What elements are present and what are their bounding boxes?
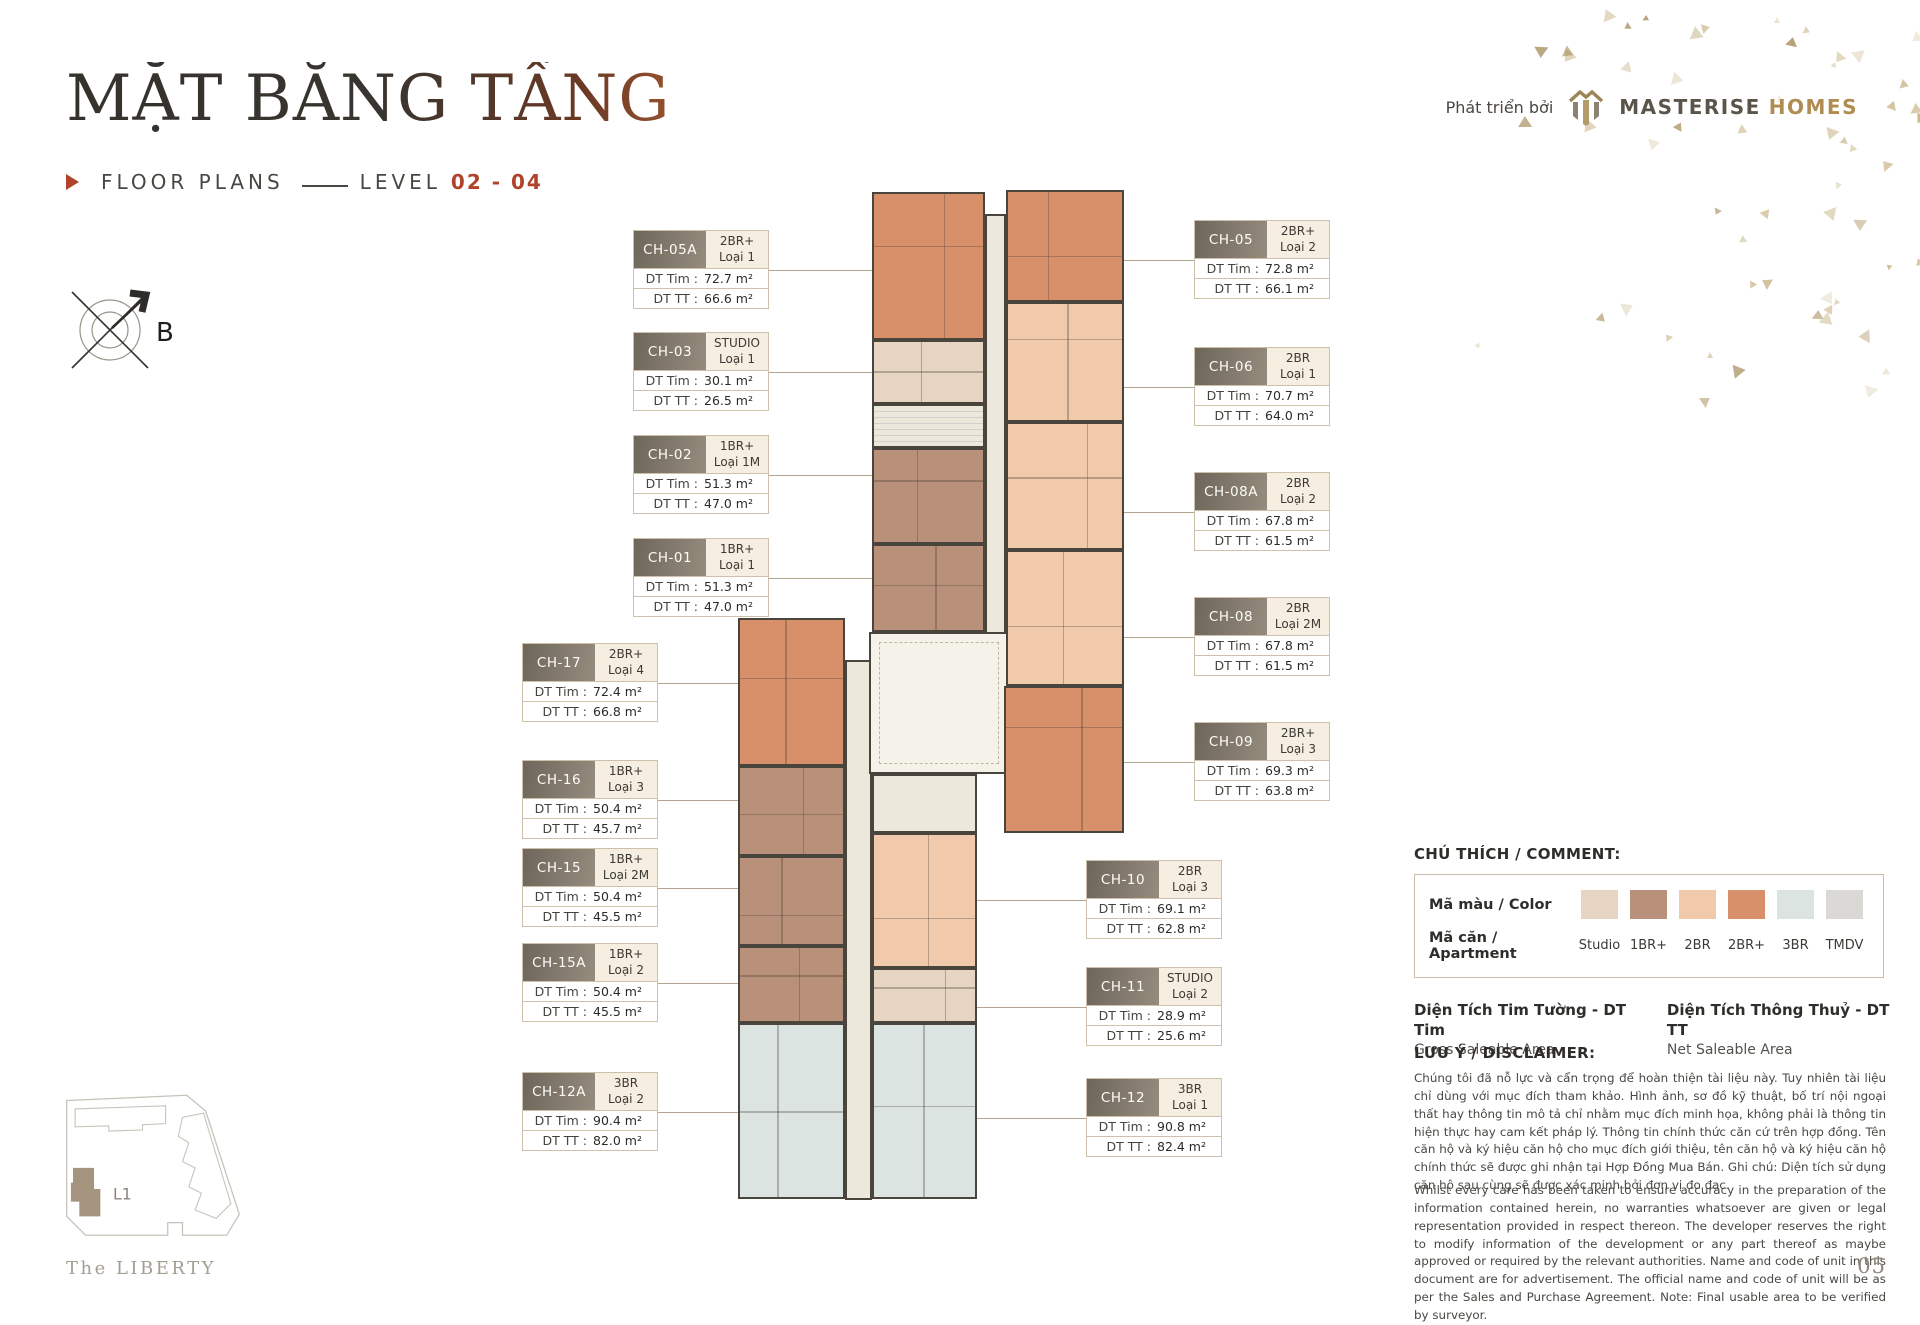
level-value: 02 - 04	[451, 170, 543, 194]
brand-word-masterise: MASTERISE	[1619, 95, 1761, 119]
room-divider	[1087, 424, 1089, 548]
room-divider	[874, 585, 983, 587]
unit-dt-tim-row: DT Tim :67.8 m²	[1195, 635, 1329, 655]
legend-swatch-2BR+	[1728, 890, 1765, 919]
confetti-triangle-icon	[1838, 136, 1847, 146]
confetti-triangle-icon	[1737, 235, 1747, 246]
unit-label-CH-08A: CH-08A 2BRLoại 2 DT Tim :67.8 m² DT TT :…	[1194, 472, 1330, 551]
legend-cell	[1624, 890, 1673, 919]
unit-label-header: CH-08A 2BRLoại 2	[1195, 473, 1329, 510]
confetti-triangle-icon	[1758, 208, 1768, 219]
building-label: L1	[113, 1184, 132, 1203]
unit-label-CH-12A: CH-12A 3BRLoại 2 DT Tim :90.4 m² DT TT :…	[522, 1072, 658, 1151]
connector-line	[769, 578, 872, 579]
unit-type: 2BR+Loại 4	[595, 644, 657, 681]
legend-swatch-Studio	[1581, 890, 1618, 919]
unit-type: STUDIOLoại 2	[1159, 968, 1221, 1005]
unit-type: STUDIOLoại 1	[706, 333, 768, 370]
room-divider	[799, 948, 801, 1021]
confetti-triangle-icon	[1699, 393, 1713, 408]
compass-icon: B	[64, 286, 194, 378]
unit-code: CH-17	[523, 644, 595, 681]
unit-dt-tt-row: DT TT :45.7 m²	[523, 818, 657, 838]
confetti-triangle-icon	[1475, 343, 1482, 350]
room-divider	[803, 768, 805, 854]
confetti-triangle-icon	[1899, 79, 1910, 91]
legend-color-row-label: Mã màu / Color	[1429, 897, 1575, 913]
legend-label-3BR: 3BR	[1771, 938, 1820, 953]
unit-label-CH-01: CH-01 1BR+Loại 1 DT Tim :51.3 m² DT TT :…	[633, 538, 769, 617]
confetti-triangle-icon	[1829, 62, 1835, 69]
confetti-triangle-icon	[1785, 36, 1799, 47]
confetti-triangle-icon	[1701, 22, 1711, 34]
unit-code: CH-15A	[523, 944, 595, 981]
unit-label-header: CH-05A 2BR+Loại 1	[634, 231, 768, 268]
unit-code: CH-09	[1195, 723, 1267, 760]
room-divider	[945, 970, 947, 1021]
unit-dt-tt-row: DT TT :66.8 m²	[523, 701, 657, 721]
unit-label-CH-17: CH-17 2BR+Loại 4 DT Tim :72.4 m² DT TT :…	[522, 643, 658, 722]
room-divider	[923, 1025, 925, 1197]
unit-dt-tim-row: DT Tim :70.7 m²	[1195, 385, 1329, 405]
disclaimer-heading: LƯU Ý / DISCLAIMER:	[1414, 1044, 1595, 1062]
unit-type: 2BRLoại 1	[1267, 348, 1329, 385]
room-divider	[740, 915, 843, 917]
room-divider	[781, 858, 783, 944]
area-term: Diện Tích Tim Tường - DT Tim	[1414, 1000, 1641, 1041]
room-divider	[1008, 339, 1122, 341]
unit-dt-tt-row: DT TT :47.0 m²	[634, 493, 768, 513]
plan-unit-CH-09	[1004, 686, 1124, 833]
plan-unit-CH-06	[1006, 302, 1124, 422]
room-divider	[1063, 552, 1065, 684]
confetti-triangle-icon	[1835, 180, 1842, 189]
confetti-triangle-icon	[1909, 102, 1920, 113]
plan-unit-CH-08	[1006, 550, 1124, 686]
unit-label-header: CH-10 2BRLoại 3	[1087, 861, 1221, 898]
confetti-triangle-icon	[1886, 101, 1899, 114]
area-term: Diện Tích Thông Thuỷ - DT TT	[1667, 1000, 1894, 1041]
legend-apartment-row-label: Mã căn / Apartment	[1429, 930, 1575, 962]
unit-code: CH-06	[1195, 348, 1267, 385]
unit-label-CH-05A: CH-05A 2BR+Loại 1 DT Tim :72.7 m² DT TT …	[633, 230, 769, 309]
unit-type: 1BR+Loại 1M	[706, 436, 768, 473]
compass: B	[64, 286, 194, 382]
unit-label-CH-15A: CH-15A 1BR+Loại 2 DT Tim :50.4 m² DT TT …	[522, 943, 658, 1022]
connector-line	[769, 372, 872, 373]
unit-dt-tim-row: DT Tim :72.4 m²	[523, 681, 657, 701]
connector-line	[658, 683, 738, 684]
unit-label-header: CH-05 2BR+Loại 2	[1195, 221, 1329, 258]
plan-unit-CH-12A	[738, 1023, 845, 1199]
plan-unit-CH-10	[872, 833, 977, 968]
confetti-triangle-icon	[1759, 275, 1773, 290]
legend-heading: CHÚ THÍCH / COMMENT:	[1414, 845, 1621, 863]
room-divider	[1008, 477, 1122, 479]
confetti-triangle-icon	[1599, 7, 1616, 23]
connector-line	[1124, 260, 1194, 261]
unit-code: CH-05A	[634, 231, 706, 268]
legend-color-row: Mã màu / Color	[1429, 890, 1869, 919]
confetti-triangle-icon	[1853, 220, 1867, 231]
unit-type: 2BR+Loại 2	[1267, 221, 1329, 258]
confetti-triangle-icon	[1747, 278, 1757, 288]
confetti-triangle-icon	[1819, 312, 1837, 330]
subtitle-rule	[302, 185, 348, 187]
legend-swatch-3BR	[1777, 890, 1814, 919]
unit-type: 1BR+Loại 3	[595, 761, 657, 798]
confetti-triangle-icon	[1915, 257, 1920, 266]
developer-credit: Phát triển bởi MASTERISE HOMES	[1446, 88, 1858, 126]
unit-code: CH-08	[1195, 598, 1267, 635]
unit-label-CH-06: CH-06 2BRLoại 1 DT Tim :70.7 m² DT TT :6…	[1194, 347, 1330, 426]
unit-code: CH-03	[634, 333, 706, 370]
unit-type: 1BR+Loại 2M	[595, 849, 657, 886]
page-title: MẶT BẰNG TẦNG	[66, 62, 671, 136]
unit-dt-tt-row: DT TT :61.5 m²	[1195, 530, 1329, 550]
unit-label-CH-12: CH-12 3BRLoại 1 DT Tim :90.8 m² DT TT :8…	[1086, 1078, 1222, 1157]
confetti-triangle-icon	[1820, 291, 1838, 308]
unit-label-header: CH-06 2BRLoại 1	[1195, 348, 1329, 385]
confetti-triangle-icon	[1712, 207, 1722, 216]
confetti-triangle-icon	[1707, 352, 1713, 358]
unit-type: 2BRLoại 3	[1159, 861, 1221, 898]
unit-dt-tt-row: DT TT :26.5 m²	[634, 390, 768, 410]
confetti-triangle-icon	[1847, 144, 1858, 155]
connector-line	[1124, 637, 1194, 638]
room-divider	[874, 987, 975, 989]
legend-cell	[1771, 890, 1820, 919]
plan-unit-CH-02	[872, 448, 985, 544]
room-divider	[1008, 626, 1122, 628]
unit-label-CH-15: CH-15 1BR+Loại 2M DT Tim :50.4 m² DT TT …	[522, 848, 658, 927]
compass-north-label: B	[156, 318, 174, 348]
unit-dt-tim-row: DT Tim :90.4 m²	[523, 1110, 657, 1130]
confetti-triangle-icon	[1811, 310, 1824, 320]
unit-label-header: CH-02 1BR+Loại 1M	[634, 436, 768, 473]
room-divider	[921, 342, 923, 402]
unit-dt-tim-row: DT Tim :72.8 m²	[1195, 258, 1329, 278]
legend-apartment-row: Mã căn / Apartment Studio1BR+2BR2BR+3BRT…	[1429, 930, 1869, 962]
legend-swatch-1BR+	[1630, 890, 1667, 919]
confetti-triangle-icon	[1596, 312, 1609, 325]
room-divider	[740, 678, 843, 680]
room-divider	[944, 194, 946, 338]
unit-dt-tim-row: DT Tim :90.8 m²	[1087, 1116, 1221, 1136]
legend-label-Studio: Studio	[1575, 938, 1624, 953]
confetti-triangle-icon	[1824, 302, 1837, 315]
connector-line	[1124, 512, 1194, 513]
room-divider	[917, 450, 919, 542]
connector-line	[769, 475, 872, 476]
unit-code: CH-10	[1087, 861, 1159, 898]
area-def: Net Saleable Area	[1667, 1041, 1894, 1060]
plan-core	[845, 660, 872, 1200]
unit-type: 1BR+Loại 1	[706, 539, 768, 576]
room-divider	[740, 1111, 843, 1113]
unit-type: 1BR+Loại 2	[595, 944, 657, 981]
legend-swatch-2BR	[1679, 890, 1716, 919]
unit-dt-tt-row: DT TT :45.5 m²	[523, 1001, 657, 1021]
unit-dt-tim-row: DT Tim :50.4 m²	[523, 798, 657, 818]
confetti-triangle-icon	[1663, 332, 1673, 342]
plan-lobby	[869, 632, 1009, 774]
legend-label-TMDV: TMDV	[1820, 938, 1869, 953]
room-divider	[935, 546, 937, 630]
confetti-triangle-icon	[1858, 329, 1870, 344]
brand-word-homes: HOMES	[1769, 95, 1858, 119]
plan-unit-CH-16	[738, 766, 845, 856]
unit-dt-tt-row: DT TT :64.0 m²	[1195, 405, 1329, 425]
unit-label-CH-03: CH-03 STUDIOLoại 1 DT Tim :30.1 m² DT TT…	[633, 332, 769, 411]
room-divider	[874, 371, 983, 373]
plan-unit-CH-05	[1006, 190, 1124, 302]
unit-dt-tim-row: DT Tim :51.3 m²	[634, 473, 768, 493]
legend-swatches	[1575, 890, 1869, 919]
room-divider	[1081, 688, 1083, 831]
unit-label-header: CH-09 2BR+Loại 3	[1195, 723, 1329, 760]
room-divider	[928, 835, 930, 966]
confetti-triangle-icon	[1620, 298, 1636, 315]
connector-line	[658, 800, 738, 801]
floor-plans-label: FLOOR PLANS	[101, 170, 284, 194]
connector-line	[1124, 762, 1194, 763]
plan-core	[872, 774, 977, 833]
legend-label-1BR+: 1BR+	[1624, 938, 1673, 953]
plan-unit-CH-05A	[872, 192, 985, 340]
connector-line	[977, 1118, 1086, 1119]
plan-stairs	[872, 404, 985, 448]
confetti-triangle-icon	[1831, 299, 1839, 307]
confetti-triangle-icon	[1880, 367, 1890, 377]
unit-dt-tim-row: DT Tim :50.4 m²	[523, 886, 657, 906]
room-divider	[874, 918, 975, 920]
connector-line	[658, 1112, 738, 1113]
connector-line	[658, 983, 738, 984]
confetti-triangle-icon	[1622, 22, 1631, 32]
triangle-bullet-icon	[66, 174, 79, 190]
confetti-triangle-icon	[1534, 47, 1549, 59]
room-divider	[740, 975, 843, 977]
unit-label-header: CH-08 2BRLoại 2M	[1195, 598, 1329, 635]
room-divider	[1048, 192, 1050, 300]
unit-dt-tt-row: DT TT :45.5 m²	[523, 906, 657, 926]
confetti-triangle-icon	[1671, 71, 1685, 87]
unit-dt-tim-row: DT Tim :50.4 m²	[523, 981, 657, 1001]
unit-code: CH-11	[1087, 968, 1159, 1005]
unit-dt-tim-row: DT Tim :69.1 m²	[1087, 898, 1221, 918]
page-subtitle: FLOOR PLANS LEVEL 02 - 04	[66, 170, 543, 194]
room-divider	[874, 480, 983, 482]
unit-dt-tim-row: DT Tim :72.7 m²	[634, 268, 768, 288]
legend-cell	[1722, 890, 1771, 919]
confetti-triangle-icon	[1774, 17, 1780, 23]
plan-core	[985, 214, 1006, 638]
legend-panel: Mã màu / Color Mã căn / Apartment Studio…	[1414, 874, 1884, 978]
confetti-triangle-icon	[1803, 26, 1812, 36]
unit-dt-tt-row: DT TT :47.0 m²	[634, 596, 768, 616]
unit-code: CH-15	[523, 849, 595, 886]
unit-dt-tt-row: DT TT :82.0 m²	[523, 1130, 657, 1150]
unit-label-header: CH-17 2BR+Loại 4	[523, 644, 657, 681]
legend-apartment-labels: Studio1BR+2BR2BR+3BRTMDV	[1575, 938, 1869, 953]
unit-label-header: CH-16 1BR+Loại 3	[523, 761, 657, 798]
confetti-triangle-icon	[1822, 205, 1836, 221]
connector-line	[977, 900, 1086, 901]
plan-unit-CH-11	[872, 968, 977, 1023]
unit-type: 2BR+Loại 1	[706, 231, 768, 268]
unit-dt-tim-row: DT Tim :69.3 m²	[1195, 760, 1329, 780]
unit-label-header: CH-01 1BR+Loại 1	[634, 539, 768, 576]
connector-line	[769, 270, 872, 271]
unit-label-CH-08: CH-08 2BRLoại 2M DT Tim :67.8 m² DT TT :…	[1194, 597, 1330, 676]
site-key-plan: L1	[58, 1090, 248, 1254]
unit-label-CH-10: CH-10 2BRLoại 3 DT Tim :69.1 m² DT TT :6…	[1086, 860, 1222, 939]
room-divider	[1006, 727, 1122, 729]
page-number: 05	[1857, 1254, 1886, 1278]
floor-plan-page: MẶT BẰNG TẦNG FLOOR PLANS LEVEL 02 - 04 …	[0, 0, 1920, 1325]
unit-type: 2BRLoại 2M	[1267, 598, 1329, 635]
connector-line	[658, 888, 738, 889]
room-divider	[1008, 256, 1122, 258]
unit-label-CH-09: CH-09 2BR+Loại 3 DT Tim :69.3 m² DT TT :…	[1194, 722, 1330, 801]
legend-swatch-TMDV	[1826, 890, 1863, 919]
room-divider	[777, 1025, 779, 1197]
confetti-triangle-icon	[1562, 46, 1576, 61]
plan-unit-CH-01	[872, 544, 985, 632]
unit-dt-tt-row: DT TT :63.8 m²	[1195, 780, 1329, 800]
unit-label-header: CH-15 1BR+Loại 2M	[523, 849, 657, 886]
unit-label-CH-16: CH-16 1BR+Loại 3 DT Tim :50.4 m² DT TT :…	[522, 760, 658, 839]
confetti-triangle-icon	[1909, 31, 1920, 46]
legend-cell	[1575, 890, 1624, 919]
unit-code: CH-08A	[1195, 473, 1267, 510]
unit-dt-tim-row: DT Tim :30.1 m²	[634, 370, 768, 390]
confetti-triangle-icon	[1912, 113, 1920, 127]
room-divider	[874, 246, 983, 248]
plan-unit-CH-12	[872, 1023, 977, 1199]
unit-label-header: CH-03 STUDIOLoại 1	[634, 333, 768, 370]
plan-unit-CH-03	[872, 340, 985, 404]
disclaimer-vietnamese: Chúng tôi đã nỗ lực và cẩn trọng để hoàn…	[1414, 1070, 1886, 1195]
unit-dt-tim-row: DT Tim :51.3 m²	[634, 576, 768, 596]
unit-label-header: CH-12 3BRLoại 1	[1087, 1079, 1221, 1116]
unit-dt-tt-row: DT TT :66.1 m²	[1195, 278, 1329, 298]
unit-dt-tt-row: DT TT :66.6 m²	[634, 288, 768, 308]
confetti-triangle-icon	[1728, 365, 1745, 381]
confetti-triangle-icon	[1690, 26, 1706, 43]
unit-type: 2BRLoại 2	[1267, 473, 1329, 510]
unit-dt-tt-row: DT TT :25.6 m²	[1087, 1025, 1221, 1045]
connector-line	[1124, 387, 1194, 388]
confetti-triangle-icon	[1851, 44, 1869, 62]
confetti-triangle-icon	[1559, 49, 1577, 66]
confetti-triangle-icon	[1831, 52, 1846, 66]
unit-label-header: CH-15A 1BR+Loại 2	[523, 944, 657, 981]
unit-dt-tim-row: DT Tim :28.9 m²	[1087, 1005, 1221, 1025]
unit-code: CH-16	[523, 761, 595, 798]
legend-cell	[1673, 890, 1722, 919]
unit-type: 3BRLoại 2	[595, 1073, 657, 1110]
room-divider	[785, 620, 787, 764]
connector-line	[977, 1007, 1086, 1008]
plan-unit-CH-15	[738, 856, 845, 946]
brand-name: MASTERISE HOMES	[1619, 95, 1858, 119]
plan-unit-CH-15A	[738, 946, 845, 1023]
project-name: The LIBERTY	[66, 1258, 216, 1279]
unit-label-header: CH-11 STUDIOLoại 2	[1087, 968, 1221, 1005]
unit-code: CH-02	[634, 436, 706, 473]
plan-unit-CH-08A	[1006, 422, 1124, 550]
unit-label-CH-05: CH-05 2BR+Loại 2 DT Tim :72.8 m² DT TT :…	[1194, 220, 1330, 299]
masterise-logo-icon	[1565, 88, 1607, 126]
unit-label-CH-02: CH-02 1BR+Loại 1M DT Tim :51.3 m² DT TT …	[633, 435, 769, 514]
developer-prefix: Phát triển bởi	[1446, 98, 1554, 117]
area-definition-dt-tt: Diện Tích Thông Thuỷ - DT TT Net Saleabl…	[1667, 1000, 1894, 1059]
legend-label-2BR: 2BR	[1673, 938, 1722, 953]
room-divider	[1067, 304, 1069, 420]
legend-label-2BR+: 2BR+	[1722, 938, 1771, 953]
confetti-triangle-icon	[1641, 15, 1649, 23]
site-key-icon: L1	[58, 1090, 248, 1250]
unit-dt-tt-row: DT TT :61.5 m²	[1195, 655, 1329, 675]
level-label: LEVEL	[360, 170, 441, 194]
unit-dt-tt-row: DT TT :82.4 m²	[1087, 1136, 1221, 1156]
confetti-triangle-icon	[1823, 127, 1840, 142]
disclaimer-english: Whilst every care has been taken to ensu…	[1414, 1182, 1886, 1325]
unit-dt-tim-row: DT Tim :67.8 m²	[1195, 510, 1329, 530]
legend-cell	[1820, 890, 1869, 919]
unit-label-CH-11: CH-11 STUDIOLoại 2 DT Tim :28.9 m² DT TT…	[1086, 967, 1222, 1046]
room-divider	[740, 814, 843, 816]
unit-code: CH-12A	[523, 1073, 595, 1110]
unit-type: 2BR+Loại 3	[1267, 723, 1329, 760]
confetti-triangle-icon	[1620, 61, 1636, 76]
plan-unit-CH-17	[738, 618, 845, 766]
unit-label-header: CH-12A 3BRLoại 2	[523, 1073, 657, 1110]
unit-code: CH-01	[634, 539, 706, 576]
unit-code: CH-05	[1195, 221, 1267, 258]
unit-type: 3BRLoại 1	[1159, 1079, 1221, 1116]
unit-dt-tt-row: DT TT :62.8 m²	[1087, 918, 1221, 938]
confetti-triangle-icon	[1644, 135, 1660, 151]
lobby-core	[879, 642, 999, 764]
confetti-triangle-icon	[1887, 263, 1894, 270]
unit-code: CH-12	[1087, 1079, 1159, 1116]
confetti-triangle-icon	[1862, 386, 1879, 401]
current-building-marker	[71, 1168, 100, 1216]
confetti-triangle-icon	[1878, 157, 1893, 172]
